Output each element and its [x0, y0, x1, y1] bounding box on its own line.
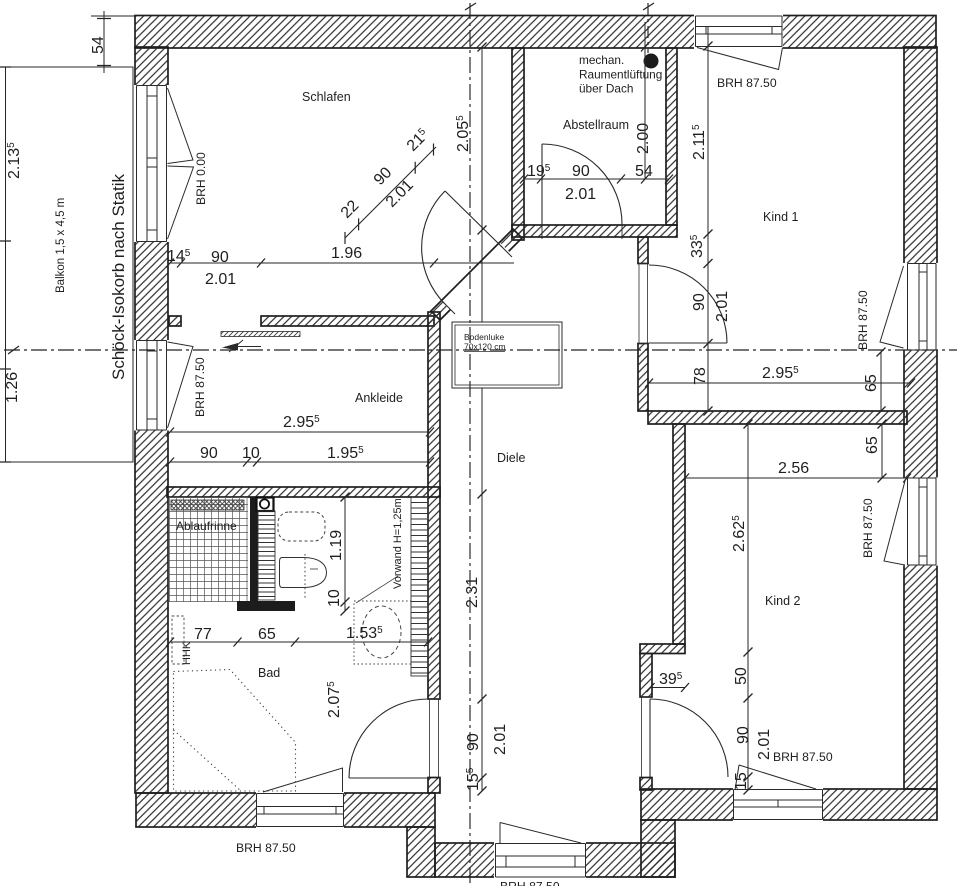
svg-text:54: 54 [90, 36, 107, 54]
svg-text:1.26: 1.26 [4, 372, 21, 403]
svg-text:2.00: 2.00 [635, 123, 652, 154]
svg-text:90: 90 [691, 293, 708, 311]
svg-text:Kind 2: Kind 2 [765, 594, 800, 608]
svg-text:Kind 1: Kind 1 [763, 210, 798, 224]
svg-text:1.96: 1.96 [331, 245, 362, 262]
svg-text:Schöck-Isokorb nach Statik: Schöck-Isokorb nach Statik [109, 174, 128, 380]
svg-text:2.01: 2.01 [714, 291, 731, 322]
svg-text:2.01: 2.01 [565, 186, 596, 203]
svg-text:2.56: 2.56 [778, 460, 809, 477]
svg-text:BRH 87.50: BRH 87.50 [856, 290, 870, 350]
svg-text:Vorwand H=1,25m: Vorwand H=1,25m [392, 498, 404, 589]
svg-text:65: 65 [863, 374, 880, 392]
svg-text:10: 10 [242, 445, 260, 462]
svg-text:78: 78 [692, 367, 709, 385]
svg-text:2.01: 2.01 [205, 271, 236, 288]
svg-text:Ablaufrinne: Ablaufrinne [176, 519, 237, 533]
svg-text:2.31: 2.31 [464, 577, 481, 608]
svg-text:BRH 87.50: BRH 87.50 [500, 880, 560, 886]
svg-text:Bodenluke: Bodenluke [464, 332, 504, 342]
svg-text:10: 10 [326, 589, 343, 607]
svg-text:77: 77 [194, 626, 212, 643]
svg-text:BRH 87.50: BRH 87.50 [193, 357, 207, 417]
svg-text:50: 50 [733, 667, 750, 685]
svg-text:65: 65 [258, 626, 276, 643]
svg-text:HHK: HHK [181, 641, 193, 665]
svg-text:15: 15 [733, 772, 750, 790]
svg-text:1.19: 1.19 [328, 530, 345, 561]
svg-text:über Dach: über Dach [579, 82, 633, 96]
svg-text:90: 90 [211, 249, 229, 266]
svg-text:BRH 87.50: BRH 87.50 [773, 750, 833, 764]
svg-text:2.01: 2.01 [756, 729, 773, 760]
svg-text:Schlafen: Schlafen [302, 90, 351, 104]
svg-text:BRH 0.00: BRH 0.00 [194, 152, 208, 205]
svg-text:90: 90 [572, 163, 590, 180]
svg-text:90: 90 [735, 726, 752, 744]
svg-text:Balkon 1,5 x 4,5 m: Balkon 1,5 x 4,5 m [55, 198, 67, 293]
svg-text:BRH 87.50: BRH 87.50 [861, 498, 875, 558]
svg-text:Raumentlüftung: Raumentlüftung [579, 68, 662, 82]
svg-text:70x120 cm: 70x120 cm [464, 342, 506, 352]
svg-text:Bad: Bad [258, 666, 280, 680]
svg-text:90: 90 [200, 445, 218, 462]
svg-text:90: 90 [465, 733, 482, 751]
svg-text:2.01: 2.01 [492, 724, 509, 755]
svg-text:65: 65 [864, 436, 881, 454]
svg-text:54: 54 [635, 163, 653, 180]
svg-text:BRH 87.50: BRH 87.50 [717, 76, 777, 90]
svg-text:mechan.: mechan. [579, 53, 624, 67]
svg-text:Ankleide: Ankleide [355, 391, 403, 405]
svg-text:BRH 87.50: BRH 87.50 [236, 841, 296, 855]
svg-text:Diele: Diele [497, 451, 526, 465]
svg-text:Abstellraum: Abstellraum [563, 118, 629, 132]
